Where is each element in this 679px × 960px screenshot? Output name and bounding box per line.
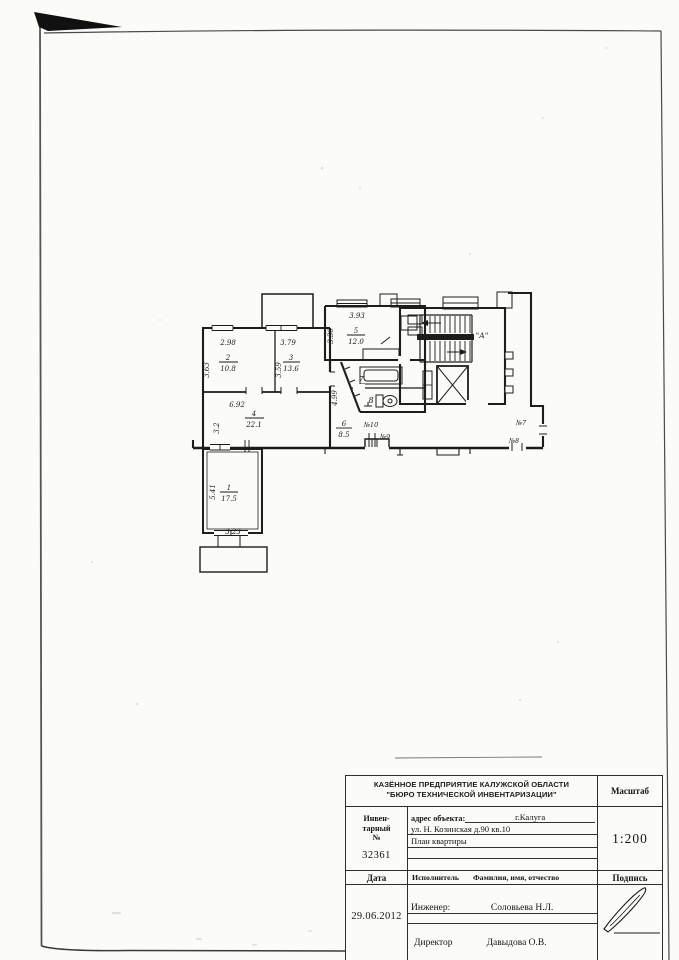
page-border-left — [40, 16, 42, 946]
stair-treads-upper — [425, 316, 470, 333]
pilasters — [505, 352, 513, 393]
doc-title: План квартиры — [408, 835, 597, 848]
inventory-cell: Инвен- тарный № 32361 — [346, 807, 408, 871]
scanned-page: 2.98 3.63 2 10.8 3.79 3.59 3 13.6 6.92 3… — [0, 0, 679, 960]
room5-area: 12.0 — [348, 338, 364, 346]
dim-room5-height: 3.30 — [327, 328, 335, 344]
room1-area: 17.5 — [221, 495, 237, 503]
address-row: адрес объекта: г.Калуга — [408, 807, 597, 823]
balcony-top — [262, 294, 313, 328]
empty-row — [408, 914, 597, 924]
room2-area: 10.8 — [220, 365, 236, 373]
address-label: адрес объекта: — [411, 814, 465, 823]
room3-area: 13.6 — [283, 365, 299, 373]
room3-number: 3 — [289, 354, 294, 362]
inventory-label: Инвен- тарный № — [346, 814, 407, 843]
director-label: Директор — [414, 938, 453, 948]
page-border-bottom — [42, 946, 346, 951]
date-header: Дата — [346, 871, 408, 885]
dim-room3-height: 3.59 — [275, 362, 283, 378]
address-empty-row — [408, 848, 597, 859]
executor-cell: Инженер: Соловьева Н.Л. Директор Давыдов… — [408, 885, 598, 960]
address-city: г.Калуга — [465, 813, 595, 823]
stray-line — [395, 757, 542, 758]
engineer-label: Инженер: — [411, 903, 450, 913]
room6-number: 6 — [342, 420, 347, 428]
room1-walls — [200, 449, 267, 572]
address-street: ул. Н. Козинская д.90 кв.10 — [408, 823, 597, 835]
room4-area: 22.1 — [245, 421, 262, 429]
dim-room2-width: 2.98 — [219, 339, 236, 347]
balcony-bottom — [200, 547, 267, 572]
dim-room2-height: 3.63 — [203, 362, 211, 378]
door-label-10: №10 — [363, 421, 378, 429]
dim-hall: 4.99 — [331, 390, 339, 407]
director-name: Давыдова О.В. — [487, 938, 547, 948]
dim-room4-height: 3.2 — [213, 422, 221, 434]
page-border-top — [44, 30, 661, 33]
toilet — [376, 395, 383, 407]
engineer-name: Соловьева Н.Л. — [450, 903, 594, 913]
room4-number: 4 — [251, 410, 256, 418]
engineer-row: Инженер: Соловьева Н.Л. — [408, 885, 597, 914]
elevator-cross — [437, 366, 468, 404]
room1-number: 1 — [227, 484, 231, 492]
inventory-number: 32361 — [346, 850, 407, 863]
plan-labels: 2.98 3.63 2 10.8 3.79 3.59 3 13.6 6.92 3… — [203, 312, 527, 536]
room2-number: 2 — [225, 354, 231, 362]
scan-corner-artifact — [34, 12, 122, 31]
signature-header: Подпись — [598, 871, 662, 885]
date-value: 29.06.2012 — [346, 885, 408, 960]
org-name-line2: "БЮРО ТЕХНИЧЕСКОЙ ИНВЕНТАРИЗАЦИИ" — [346, 790, 597, 800]
door-label-9: №9 — [379, 433, 390, 441]
stair-landing — [417, 334, 474, 340]
scale-value: 1:200 — [598, 807, 662, 871]
dim-room3-width: 3.79 — [280, 339, 296, 347]
fio-label: Фамилия, имя, отчество — [473, 873, 559, 882]
floor-plan: 2.98 3.63 2 10.8 3.79 3.59 3 13.6 6.92 3… — [190, 283, 555, 588]
room5-number: 5 — [354, 327, 359, 335]
room6-area: 8.5 — [338, 431, 350, 439]
scale-header: Масштаб — [598, 776, 662, 807]
dim-room5-width: 3.93 — [349, 312, 365, 320]
dim-room1-width: 3.23 — [225, 528, 241, 536]
stairwell-label: "А" — [476, 331, 489, 340]
org-name: КАЗЁННОЕ ПРЕДПРИЯТИЕ КАЛУЖСКОЙ ОБЛАСТИ "… — [346, 776, 598, 807]
address-cell: адрес объекта: г.Калуга ул. Н. Козинская… — [408, 807, 598, 871]
org-name-line1: КАЗЁННОЕ ПРЕДПРИЯТИЕ КАЛУЖСКОЙ ОБЛАСТИ — [346, 780, 597, 790]
stair-arrow-down — [460, 349, 467, 355]
door-label-8: №8 — [508, 437, 519, 445]
dim-room1-height: 5.41 — [209, 484, 217, 500]
title-block: КАЗЁННОЕ ПРЕДПРИЯТИЕ КАЛУЖСКОЙ ОБЛАСТИ "… — [345, 775, 663, 960]
dim-room4-width: 6.92 — [229, 401, 245, 409]
executor-label: Исполнитель — [412, 873, 459, 882]
bath-fixtures — [360, 367, 402, 407]
executor-header: Исполнитель Фамилия, имя, отчество — [408, 871, 598, 885]
director-row: Директор Давыдова О.В. — [408, 924, 597, 948]
door-label-7: №7 — [515, 419, 527, 427]
signature-cell — [598, 885, 662, 960]
signature-mark — [598, 885, 662, 960]
room8-number: 8 — [368, 396, 373, 405]
